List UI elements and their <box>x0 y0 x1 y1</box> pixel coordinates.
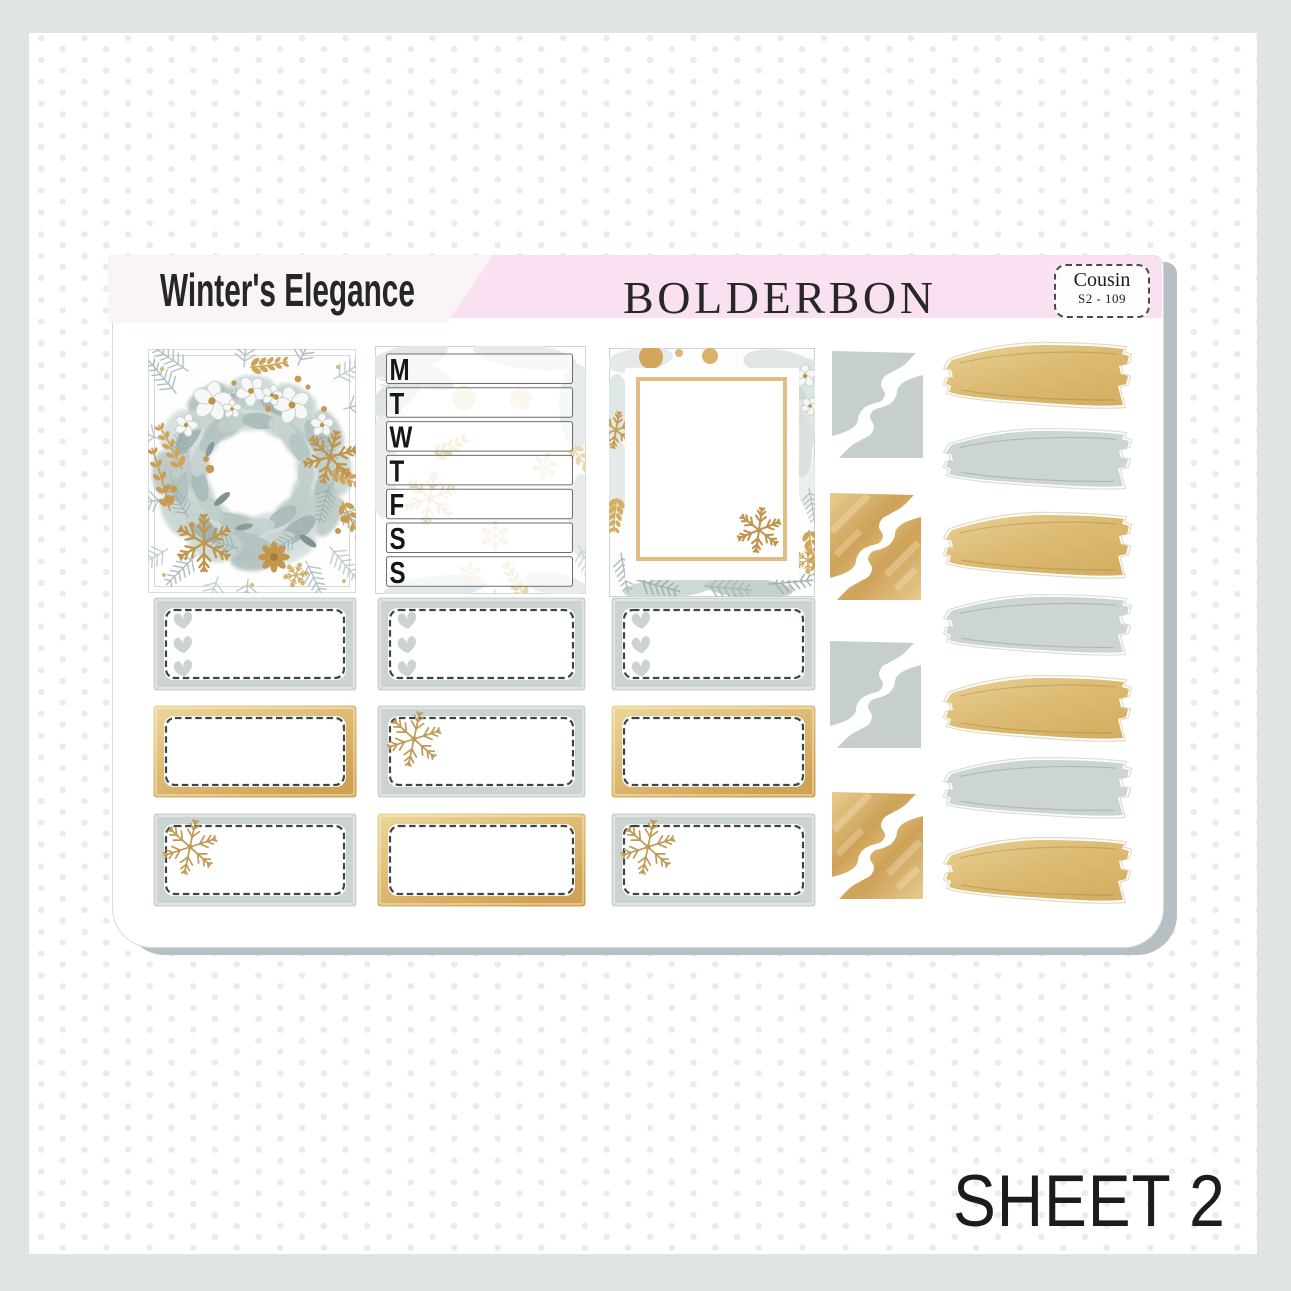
svg-text:T: T <box>390 454 405 489</box>
svg-text:M: M <box>390 352 410 387</box>
svg-text:S: S <box>390 555 406 590</box>
svg-text:S: S <box>390 521 406 556</box>
svg-text:F: F <box>390 487 405 522</box>
svg-text:W: W <box>390 420 413 455</box>
svg-text:T: T <box>390 386 405 421</box>
